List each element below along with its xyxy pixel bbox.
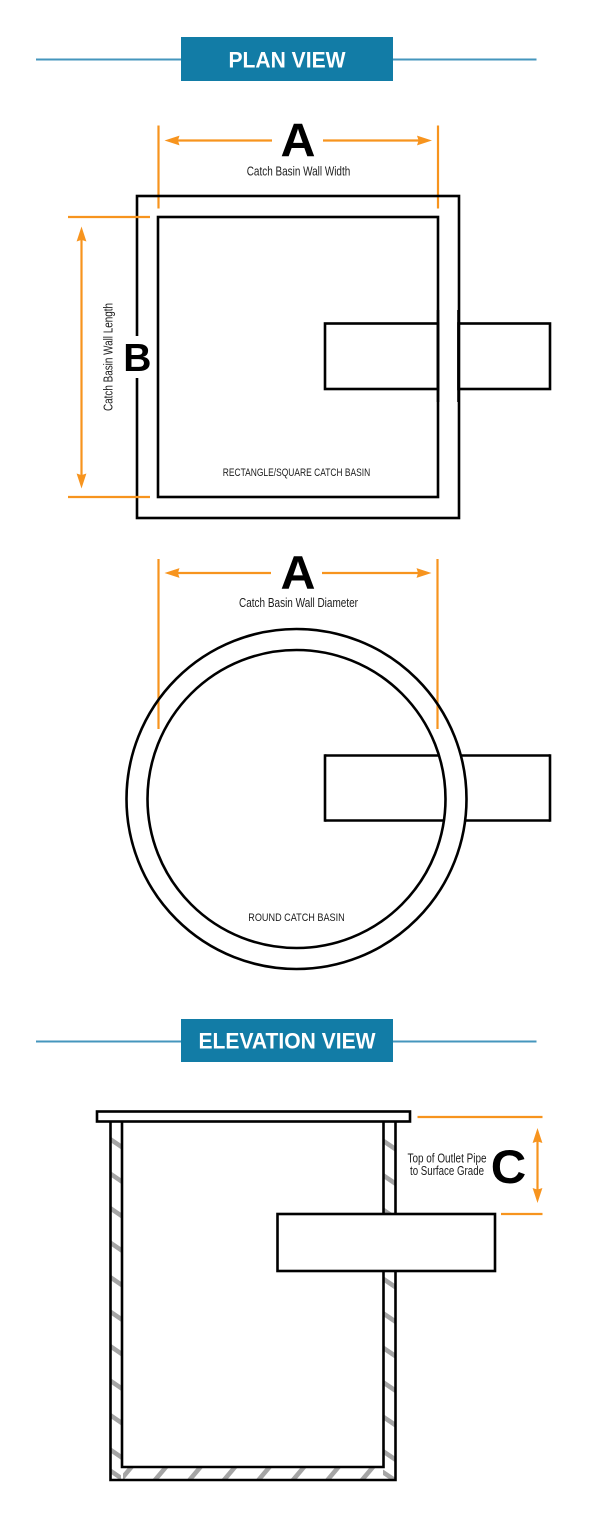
svg-text:PLAN VIEW: PLAN VIEW bbox=[229, 48, 347, 73]
svg-text:B: B bbox=[123, 337, 151, 380]
svg-text:A: A bbox=[281, 114, 316, 167]
svg-text:to Surface Grade: to Surface Grade bbox=[410, 1163, 484, 1178]
svg-text:ROUND CATCH BASIN: ROUND CATCH BASIN bbox=[248, 912, 345, 924]
svg-text:Catch Basin Wall Diameter: Catch Basin Wall Diameter bbox=[239, 595, 359, 610]
svg-text:Catch Basin Wall Length: Catch Basin Wall Length bbox=[101, 303, 116, 411]
svg-text:Catch Basin Wall Width: Catch Basin Wall Width bbox=[247, 164, 351, 179]
svg-text:C: C bbox=[491, 1140, 527, 1193]
svg-text:ELEVATION VIEW: ELEVATION VIEW bbox=[199, 1029, 377, 1054]
svg-text:A: A bbox=[281, 546, 316, 599]
svg-text:RECTANGLE/SQUARE CATCH BASIN: RECTANGLE/SQUARE CATCH BASIN bbox=[223, 467, 371, 479]
